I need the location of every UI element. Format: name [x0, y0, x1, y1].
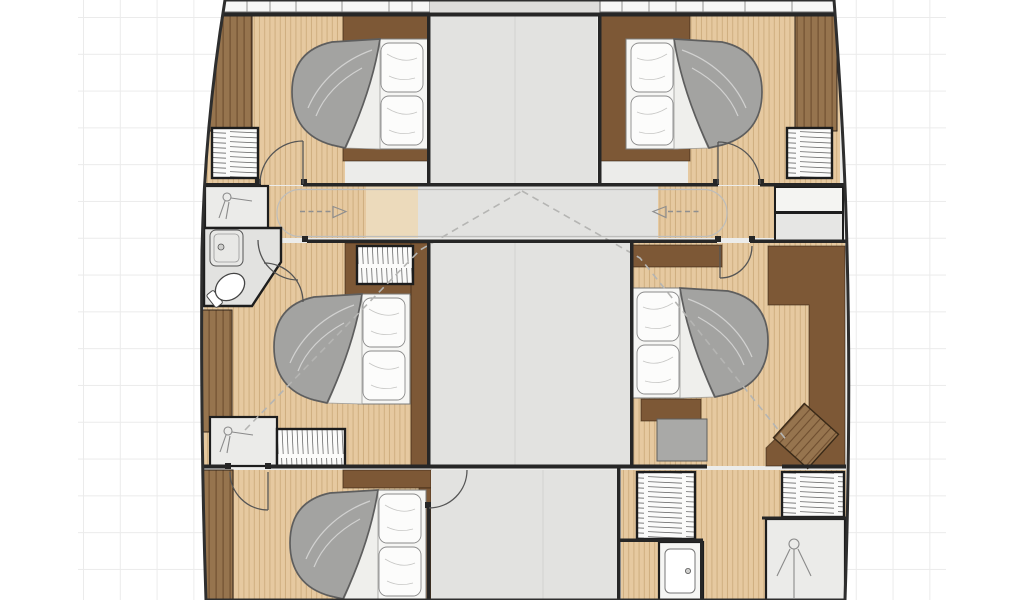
shelf-unit — [212, 128, 258, 178]
cabinet-right-bottom — [775, 213, 843, 241]
double-bed — [632, 288, 768, 398]
shower-stall — [766, 519, 845, 600]
shelf-unit — [787, 128, 832, 178]
hull-wardrobe-panel — [795, 15, 837, 131]
faucet — [685, 568, 690, 573]
fore-floor-gray — [430, 0, 600, 13]
floor-plan-page — [0, 0, 1024, 600]
cabinet-strip — [343, 470, 431, 488]
mid-center-floor — [429, 243, 631, 466]
fore-lockers — [220, 0, 838, 13]
locker-left — [220, 0, 430, 12]
wood-flat — [366, 186, 418, 238]
cabin-mid-right — [632, 243, 845, 468]
cabin-fore-left — [204, 15, 429, 185]
aft-center-floor — [431, 470, 618, 600]
cabin-fore-right — [601, 15, 840, 185]
wardrobe-hanging — [782, 472, 844, 517]
utility-aft-right — [621, 470, 846, 600]
shower-stall — [210, 417, 277, 466]
faucet — [218, 244, 224, 250]
fore-center-floor — [431, 16, 597, 184]
wardrobe-hanging — [637, 472, 695, 539]
double-bed — [274, 294, 410, 404]
double-bed — [626, 39, 762, 149]
shower-stall-left — [205, 186, 268, 228]
cabin-aft-left — [202, 470, 431, 600]
cabinet-right-top — [775, 187, 843, 212]
bed-footboard — [641, 399, 701, 421]
corridor-athwartship — [205, 186, 843, 241]
double-bed — [290, 490, 426, 600]
locker-right — [600, 0, 838, 12]
floor-plan-drawing — [0, 0, 1024, 600]
hull-wardrobe-panel — [202, 310, 232, 432]
cabinet-strip — [633, 245, 722, 267]
double-bed — [292, 39, 428, 149]
seat-ottoman — [657, 419, 707, 461]
wardrobe-hanging — [277, 429, 345, 466]
